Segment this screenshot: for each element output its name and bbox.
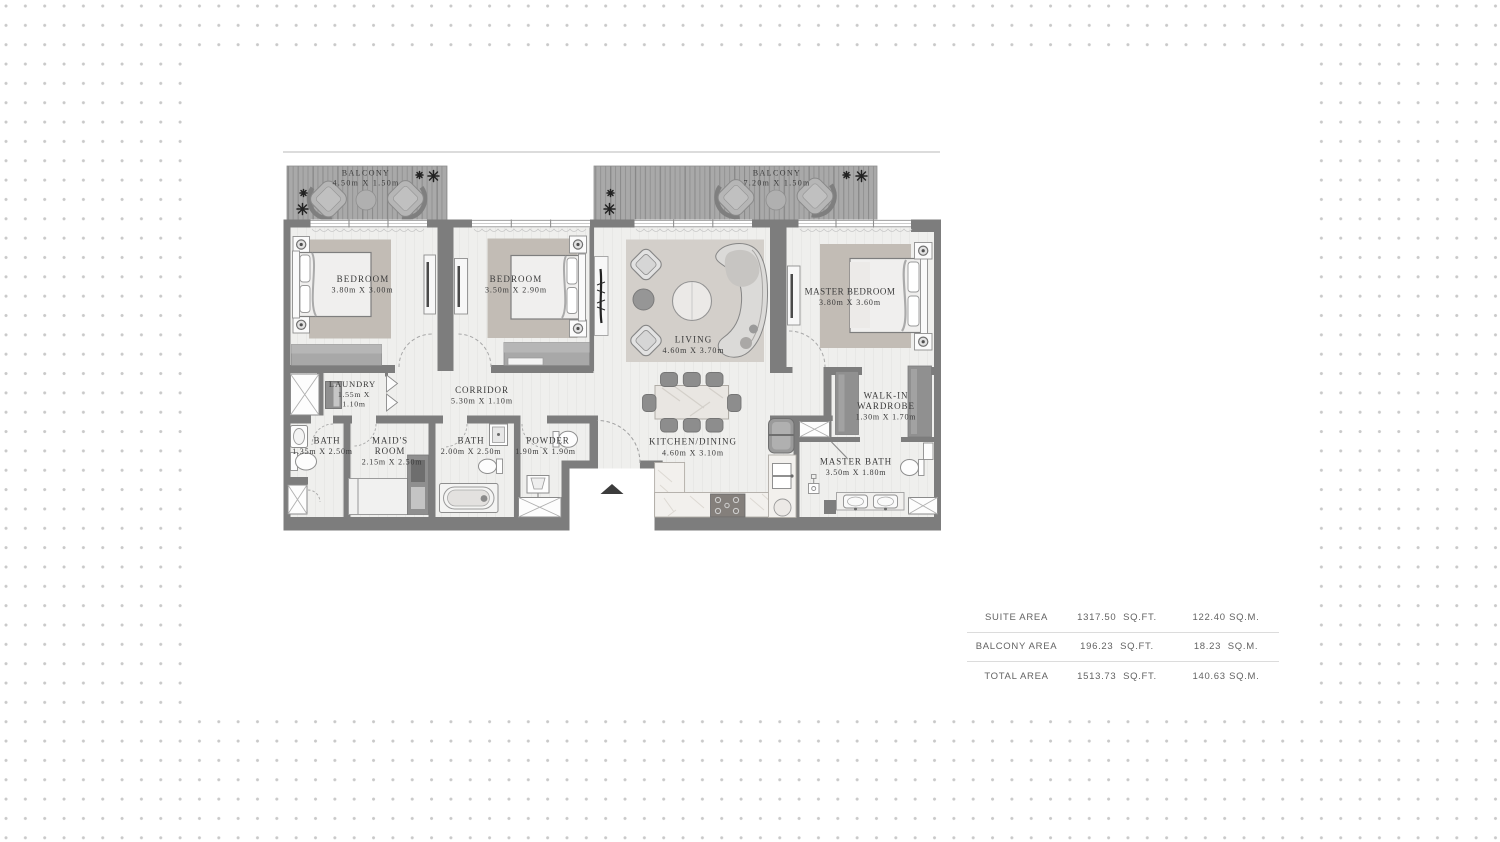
svg-text:3.80m X 3.00m: 3.80m X 3.00m: [332, 286, 394, 295]
svg-text:3.80m X 3.60m: 3.80m X 3.60m: [819, 298, 881, 307]
svg-text:MAID'S: MAID'S: [372, 436, 408, 446]
svg-text:BALCONY: BALCONY: [342, 169, 390, 178]
svg-text:KITCHEN/DINING: KITCHEN/DINING: [649, 437, 737, 447]
svg-text:LAUNDRY: LAUNDRY: [329, 379, 376, 389]
svg-text:2.00m X 2.50m: 2.00m X 2.50m: [441, 447, 502, 456]
svg-text:3.50m X 1.80m: 3.50m X 1.80m: [826, 468, 887, 477]
svg-text:BEDROOM: BEDROOM: [490, 274, 543, 284]
svg-text:4.60m X 3.70m: 4.60m X 3.70m: [663, 346, 725, 355]
svg-text:1.30m X 1.70m: 1.30m X 1.70m: [856, 413, 917, 422]
svg-text:MASTER BEDROOM: MASTER BEDROOM: [805, 287, 896, 297]
svg-text:1.55m X: 1.55m X: [338, 390, 370, 399]
svg-text:LIVING: LIVING: [675, 335, 713, 345]
svg-text:CORRIDOR: CORRIDOR: [455, 385, 509, 395]
svg-text:1.35m X 2.50m: 1.35m X 2.50m: [292, 447, 353, 456]
svg-text:1.10m: 1.10m: [342, 400, 365, 409]
svg-text:BEDROOM: BEDROOM: [337, 274, 390, 284]
svg-text:2.15m X 2.50m: 2.15m X 2.50m: [362, 458, 423, 467]
svg-text:BATH: BATH: [457, 436, 484, 446]
svg-text:5.30m X 1.10m: 5.30m X 1.10m: [451, 397, 513, 406]
svg-text:7.20m X 1.50m: 7.20m X 1.50m: [743, 179, 810, 188]
svg-text:WALK-IN: WALK-IN: [864, 391, 909, 401]
svg-text:MASTER BATH: MASTER BATH: [820, 457, 892, 467]
svg-text:4.50m X 1.50m: 4.50m X 1.50m: [332, 179, 399, 188]
svg-text:ROOM: ROOM: [375, 446, 406, 456]
svg-text:POWDER: POWDER: [526, 436, 569, 446]
svg-text:4.60m X 3.10m: 4.60m X 3.10m: [662, 449, 724, 458]
svg-text:3.50m X 2.90m: 3.50m X 2.90m: [485, 286, 547, 295]
svg-text:BATH: BATH: [313, 436, 340, 446]
svg-text:1.90m X 1.90m: 1.90m X 1.90m: [515, 447, 576, 456]
svg-text:BALCONY: BALCONY: [753, 169, 801, 178]
svg-text:WARDROBE: WARDROBE: [857, 401, 915, 411]
